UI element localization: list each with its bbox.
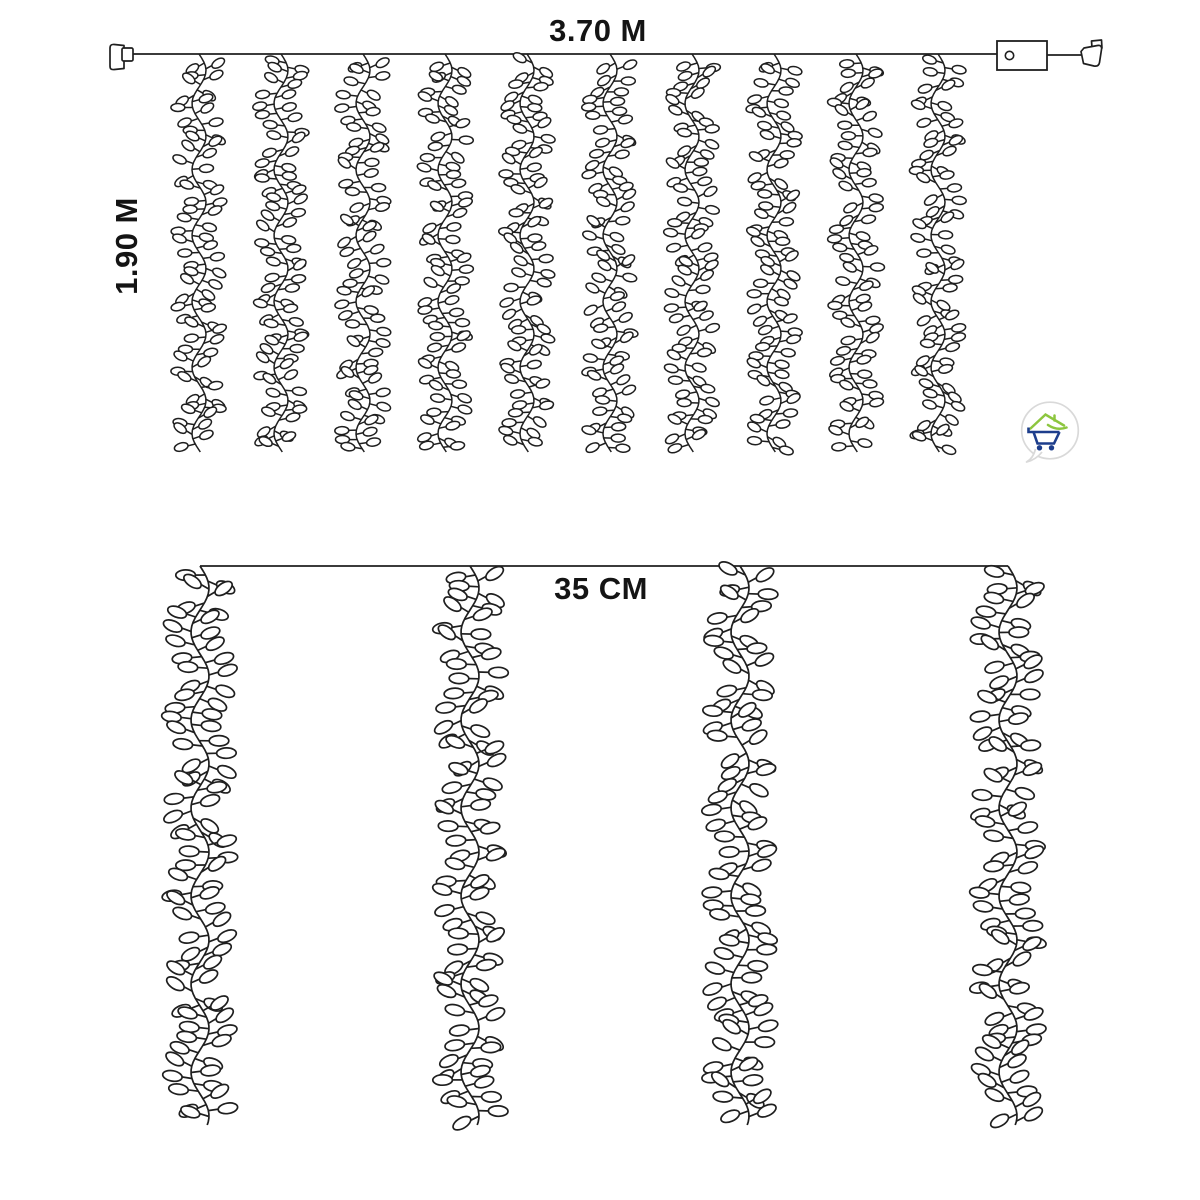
light-bulb	[512, 122, 528, 135]
light-bulb	[506, 114, 521, 125]
light-bulb	[952, 196, 967, 205]
light-bulb	[508, 79, 523, 89]
light-bulb	[972, 789, 993, 802]
light-bulb	[178, 931, 199, 945]
light-bulb	[663, 228, 678, 238]
light-bulb	[947, 183, 962, 192]
store-logo	[1018, 400, 1082, 464]
light-bulb	[676, 60, 692, 72]
light-bulb	[862, 178, 877, 188]
light-bulb	[196, 354, 212, 368]
light-bulb	[428, 321, 443, 331]
light-bulb	[471, 629, 491, 640]
light-bulb	[170, 301, 185, 312]
light-bulb	[757, 120, 772, 131]
light-bulb	[173, 441, 189, 453]
light-bulb	[830, 355, 846, 366]
light-bulb	[511, 325, 525, 334]
light-bulb	[178, 661, 198, 673]
light-bulb	[282, 216, 298, 229]
light-bulb	[1021, 934, 1043, 953]
light-bulb	[446, 235, 460, 244]
light-bulb	[970, 710, 991, 723]
light-bulb	[705, 204, 720, 215]
light-bulb	[366, 88, 382, 102]
light-bulb	[449, 308, 464, 317]
light-bulb	[254, 238, 269, 248]
light-bulb	[861, 214, 876, 225]
light-bulb	[1023, 920, 1043, 931]
light-bulb	[286, 244, 301, 253]
light-bulb	[184, 333, 199, 342]
light-bulb	[591, 271, 607, 284]
height-dimension-label: 1.90 M	[109, 197, 145, 295]
light-bulb	[595, 137, 611, 148]
light-bulb	[513, 254, 529, 267]
light-bulb	[207, 204, 223, 217]
light-bulb	[375, 201, 391, 212]
light-bulb	[783, 408, 798, 417]
light-bulb	[444, 1039, 465, 1052]
light-bulb	[168, 1083, 189, 1096]
light-strand	[416, 54, 474, 452]
light-bulb	[362, 426, 378, 437]
light-bulb	[1006, 1052, 1028, 1070]
light-bulb	[677, 70, 693, 82]
light-bulb	[719, 1108, 741, 1125]
light-bulb	[742, 972, 762, 983]
light-bulb	[951, 64, 966, 75]
light-bulb	[911, 430, 927, 443]
light-bulb	[340, 410, 356, 422]
light-bulb	[786, 334, 802, 345]
light-bulb	[343, 76, 359, 87]
light-bulb	[677, 128, 692, 138]
light-bulb	[842, 260, 858, 274]
light-bulb	[1017, 860, 1039, 876]
light-bulb	[283, 368, 299, 382]
light-bulb	[701, 803, 722, 817]
light-bulb	[704, 138, 720, 151]
light-bulb	[366, 437, 381, 447]
light-bulb	[362, 229, 378, 243]
light-strand	[745, 54, 802, 456]
light-bulb	[527, 162, 542, 172]
light-bulb	[528, 436, 543, 447]
light-bulb	[857, 168, 871, 177]
light-bulb	[870, 263, 884, 272]
light-bulb	[452, 380, 466, 389]
light-bulb	[840, 335, 855, 345]
light-bulb	[455, 318, 469, 326]
light-bulb	[444, 1003, 465, 1017]
light-bulb	[449, 673, 469, 684]
light-bulb	[948, 134, 964, 147]
light-bulb	[345, 319, 359, 328]
light-bulb	[282, 171, 297, 181]
light-bulb	[698, 415, 712, 424]
light-bulb	[165, 633, 187, 649]
light-bulb	[989, 1112, 1011, 1131]
light-bulb	[620, 200, 636, 213]
light-bulb	[470, 798, 491, 811]
light-bulb	[615, 216, 630, 225]
light-bulb	[1011, 882, 1032, 894]
light-bulb	[502, 434, 518, 447]
light-bulb	[334, 103, 349, 113]
light-bulb	[856, 354, 872, 365]
light-bulb	[208, 68, 224, 82]
spacing-dimension-label: 35 CM	[554, 571, 648, 607]
light-bulb	[923, 193, 939, 207]
light-bulb	[611, 434, 625, 442]
light-bulb	[447, 944, 467, 956]
light-bulb	[510, 389, 525, 399]
light-bulb	[620, 137, 636, 149]
light-bulb	[474, 910, 496, 927]
light-bulb	[348, 62, 364, 75]
light-bulb	[210, 252, 225, 262]
light-bulb	[758, 589, 778, 600]
light-bulb	[983, 829, 1004, 843]
light-strand	[334, 54, 391, 452]
logo-cart-wheel-left	[1037, 445, 1042, 450]
light-bulb	[285, 283, 300, 293]
light-bulb	[863, 148, 878, 158]
light-bulb	[504, 373, 520, 385]
light-bulb	[428, 378, 444, 392]
light-bulb	[841, 132, 855, 140]
light-bulb	[346, 122, 361, 132]
light-bulb	[615, 373, 631, 387]
light-bulb	[197, 417, 213, 431]
light-bulb	[701, 981, 723, 998]
light-bulb	[340, 441, 355, 452]
light-bulb	[713, 645, 735, 661]
logo-cart-wheel-right	[1049, 445, 1054, 450]
light-bulb	[664, 303, 679, 312]
light-bulb	[610, 97, 624, 106]
light-bulb	[375, 338, 390, 349]
light-bulb	[838, 121, 852, 129]
light-bulb	[202, 147, 218, 160]
light-bulb	[704, 960, 726, 976]
light-bulb	[748, 960, 768, 971]
light-bulb	[705, 322, 721, 334]
light-bulb	[369, 243, 385, 256]
light-bulb	[691, 362, 707, 374]
light-bulb	[1008, 1068, 1030, 1085]
light-bulb	[1020, 689, 1040, 699]
light-bulb	[438, 820, 458, 831]
light-bulb	[255, 90, 270, 100]
light-bulb	[211, 1032, 233, 1048]
light-bulb	[430, 393, 445, 403]
light-bulb	[260, 246, 275, 256]
light-bulb	[1023, 667, 1045, 685]
light-bulb	[162, 617, 184, 634]
light-bulb	[717, 559, 739, 577]
light-bulb	[781, 201, 797, 215]
light-bulb	[441, 780, 463, 795]
light-bulb	[671, 274, 687, 288]
light-bulb	[787, 65, 803, 76]
light-bulb	[757, 944, 777, 955]
light-bulb	[446, 835, 466, 847]
light-bulb	[446, 282, 462, 295]
light-bulb	[699, 268, 715, 282]
light-bulb	[747, 290, 761, 298]
light-bulb	[427, 342, 442, 353]
light-bulb	[668, 219, 682, 228]
light-bulb	[459, 136, 473, 145]
light-bulb	[214, 683, 236, 700]
light-bulb	[446, 170, 460, 179]
light-bulb	[208, 117, 223, 128]
light-bulb	[779, 87, 793, 95]
light-bulb	[748, 781, 770, 799]
light-strand	[581, 54, 639, 454]
light-bulb	[459, 265, 474, 274]
light-bulb	[428, 69, 444, 82]
light-strand	[663, 54, 721, 454]
light-bulb	[375, 56, 391, 70]
light-bulb	[291, 274, 306, 284]
light-bulb	[917, 83, 933, 95]
light-bulb	[262, 147, 278, 159]
light-bulb	[444, 687, 464, 699]
light-bulb	[595, 195, 611, 208]
light-bulb	[842, 201, 858, 215]
light-bulb	[452, 207, 468, 220]
light-bulb	[446, 369, 461, 378]
light-bulb	[705, 396, 721, 408]
light-bulb	[281, 235, 296, 245]
light-strand	[827, 54, 885, 452]
light-bulb	[922, 54, 938, 66]
light-bulb	[702, 184, 718, 198]
light-bulb	[664, 363, 680, 374]
light-bulb	[621, 253, 637, 268]
light-bulb	[622, 272, 637, 283]
controller-box	[997, 41, 1047, 70]
light-bulb	[951, 323, 966, 333]
light-bulb	[922, 398, 938, 410]
light-bulb	[171, 103, 185, 111]
light-bulb	[266, 256, 282, 267]
light-bulb	[979, 632, 1001, 652]
light-bulb	[773, 157, 789, 169]
light-bulb	[423, 276, 439, 290]
light-bulb	[775, 419, 790, 430]
light-bulb	[175, 827, 196, 842]
light-bulb	[216, 748, 236, 759]
power-plug-right-icon	[1081, 40, 1102, 66]
light-bulb	[757, 189, 772, 198]
light-bulb	[610, 243, 626, 257]
light-bulb	[172, 153, 188, 166]
light-bulb	[836, 345, 851, 356]
light-bulb	[755, 342, 770, 351]
light-bulb	[941, 444, 957, 457]
light-bulb	[759, 129, 775, 141]
light-bulb	[721, 657, 743, 676]
light-bulb	[984, 659, 1006, 675]
light-bulb	[217, 1102, 238, 1116]
light-bulb	[938, 231, 952, 240]
light-bulb	[438, 1052, 460, 1070]
light-bulb	[757, 1018, 779, 1033]
light-bulb	[266, 130, 281, 141]
light-bulb	[951, 332, 966, 343]
light-bulb	[950, 400, 966, 413]
light-bulb	[857, 438, 872, 449]
light-bulb	[774, 98, 789, 109]
light-bulb	[581, 169, 596, 180]
light-bulb	[481, 1091, 501, 1102]
light-bulb	[162, 808, 184, 825]
light-bulb	[528, 234, 543, 243]
light-bulb	[1017, 820, 1038, 835]
light-bulb	[198, 429, 214, 442]
light-bulb	[917, 249, 931, 258]
light-bulb	[618, 311, 634, 325]
light-bulb	[714, 831, 734, 842]
light-bulb	[264, 272, 279, 282]
light-bulb	[364, 167, 379, 178]
light-bulb	[746, 905, 766, 916]
light-bulb	[595, 395, 610, 405]
light-bulb	[867, 127, 883, 139]
light-bulb	[430, 332, 444, 340]
light-bulb	[376, 401, 392, 413]
light-strand	[498, 51, 556, 452]
light-bulb	[172, 232, 188, 244]
light-bulb	[973, 899, 994, 913]
light-bulb	[595, 62, 611, 76]
light-bulb	[754, 279, 768, 287]
light-bulb	[707, 729, 728, 741]
light-bulb	[827, 234, 842, 243]
light-bulb	[593, 125, 608, 135]
light-bulb	[446, 658, 466, 669]
light-bulb	[677, 197, 692, 207]
bottom-detail-section	[161, 559, 1047, 1132]
light-bulb	[164, 974, 186, 993]
light-bulb	[292, 387, 307, 396]
light-bulb	[289, 316, 304, 327]
light-bulb	[334, 299, 349, 310]
light-bulb	[1008, 711, 1029, 725]
power-plug-left-icon	[110, 44, 133, 69]
light-bulb	[371, 121, 387, 133]
light-bulb	[828, 301, 842, 309]
light-bulb	[424, 113, 440, 125]
light-bulb	[376, 327, 391, 337]
light-bulb	[839, 59, 854, 68]
light-bulb	[776, 237, 790, 245]
light-bulb	[610, 290, 626, 301]
light-bulb	[945, 341, 961, 353]
light-bulb	[774, 369, 789, 380]
light-bulb	[375, 71, 390, 81]
light-bulb	[937, 100, 953, 112]
light-bulb	[448, 928, 468, 939]
light-bulb	[211, 266, 227, 279]
light-strand	[252, 54, 310, 452]
light-bulb	[753, 78, 768, 89]
light-bulb	[941, 144, 957, 157]
light-bulb	[865, 330, 881, 344]
light-bulb	[198, 967, 220, 985]
light-bulb	[202, 222, 217, 233]
light-bulb	[948, 275, 962, 284]
light-bulb	[668, 376, 683, 385]
light-bulb	[615, 149, 630, 160]
light-bulb	[509, 209, 523, 217]
light-bulb	[858, 279, 874, 292]
light-bulb	[666, 242, 681, 253]
light-bulb	[754, 565, 776, 584]
light-strand	[170, 54, 228, 453]
light-bulb	[869, 203, 884, 212]
light-bulb	[457, 404, 473, 416]
light-bulb	[433, 1075, 453, 1085]
light-bulb	[371, 314, 385, 322]
light-bulb	[365, 158, 379, 167]
light-bulb	[869, 193, 884, 203]
light-bulb	[416, 162, 432, 174]
light-bulb	[838, 379, 854, 392]
light-bulb	[199, 793, 221, 809]
light-bulb	[209, 333, 225, 346]
light-bulb	[540, 333, 556, 345]
light-bulb	[430, 131, 446, 143]
light-bulb	[183, 315, 199, 329]
light-bulb	[780, 151, 794, 159]
light-bulb	[611, 300, 627, 313]
light-bulb	[838, 140, 853, 150]
light-bulb	[428, 142, 443, 152]
light-bulb	[696, 285, 711, 294]
light-bulb	[673, 182, 688, 193]
light-bulb	[582, 229, 598, 241]
light-bulb	[210, 56, 226, 70]
light-bulb	[164, 792, 185, 805]
light-bulb	[446, 222, 461, 232]
light-bulb	[910, 232, 926, 243]
light-bulb	[281, 88, 297, 100]
light-bulb	[444, 294, 460, 306]
light-bulb	[975, 605, 996, 619]
light-bulb	[162, 1069, 183, 1083]
light-bulb	[862, 110, 878, 123]
light-bulb	[291, 208, 306, 218]
light-bulb	[178, 249, 192, 258]
light-bulb	[840, 316, 856, 329]
light-bulb	[266, 192, 281, 203]
light-bulb	[472, 606, 494, 623]
light-bulb	[692, 166, 707, 176]
light-bulb	[596, 258, 612, 272]
light-bulb	[540, 133, 555, 144]
light-bulb	[751, 857, 773, 873]
light-bulb	[179, 178, 195, 190]
light-bulb	[512, 51, 528, 65]
light-bulb	[983, 1086, 1005, 1104]
top-curtain-section	[110, 40, 1102, 456]
light-bulb	[254, 158, 269, 169]
